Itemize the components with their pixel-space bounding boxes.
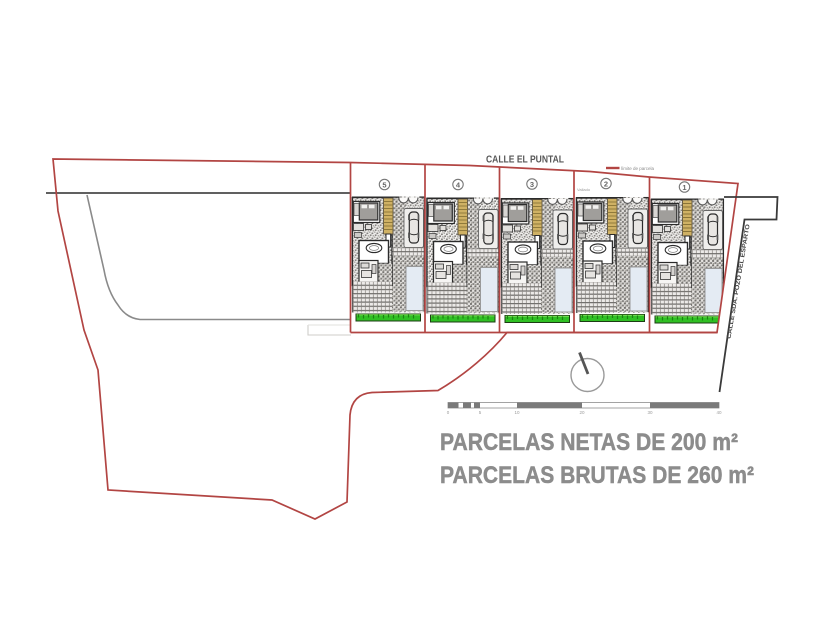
svg-text:5: 5: [382, 180, 386, 189]
svg-text:30: 30: [647, 410, 653, 415]
svg-text:3: 3: [530, 180, 534, 189]
svg-text:2: 2: [604, 179, 608, 188]
svg-text:40: 40: [716, 410, 722, 415]
svg-text:Vallado: Vallado: [577, 187, 591, 192]
svg-text:límite de parcela: límite de parcela: [621, 166, 655, 171]
svg-text:20: 20: [579, 410, 585, 415]
svg-text:PARCELAS NETAS DE 200 m²: PARCELAS NETAS DE 200 m²: [440, 429, 738, 456]
svg-text:PARCELAS BRUTAS DE 260 m²: PARCELAS BRUTAS DE 260 m²: [440, 462, 754, 489]
svg-text:CALLE EL PUNTAL: CALLE EL PUNTAL: [486, 154, 564, 166]
svg-text:10: 10: [514, 410, 520, 415]
svg-text:1: 1: [682, 183, 686, 192]
